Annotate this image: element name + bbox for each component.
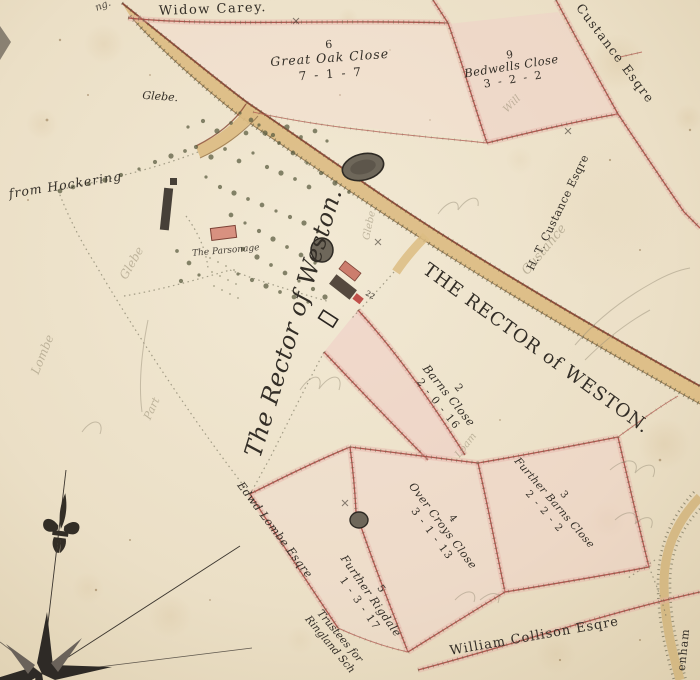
tree-mark xyxy=(229,213,234,218)
tree-mark xyxy=(168,153,173,158)
tree-mark xyxy=(347,190,351,194)
tree-mark xyxy=(250,278,254,282)
tree-mark xyxy=(244,131,249,136)
orchard-dot xyxy=(229,293,231,295)
tree-mark xyxy=(263,283,268,288)
orchard-dot xyxy=(217,261,219,263)
tree-mark xyxy=(251,151,254,154)
map-canvas: Widow Carey. ng. 6 Great Oak Close 7 - 1… xyxy=(0,0,700,680)
tree-mark xyxy=(284,124,289,129)
foxing-speck xyxy=(499,419,501,421)
tree-mark xyxy=(201,119,205,123)
tree-mark xyxy=(293,177,297,181)
foxing-speck xyxy=(95,589,97,591)
tree-mark xyxy=(257,229,261,233)
tree-mark xyxy=(257,123,260,126)
tree-mark xyxy=(262,130,267,135)
orchard-dot xyxy=(221,289,223,291)
building-outbuilding xyxy=(170,178,177,185)
tree-mark xyxy=(229,121,233,125)
orchard-dot xyxy=(237,297,239,299)
tree-mark xyxy=(307,185,312,190)
foxing-speck xyxy=(87,94,89,96)
tree-mark xyxy=(153,160,157,164)
foxing-speck xyxy=(609,159,611,161)
foxing-speck xyxy=(149,74,151,76)
estate-map: Widow Carey. ng. 6 Great Oak Close 7 - 1… xyxy=(0,0,700,680)
tree-mark xyxy=(183,149,187,153)
tree-mark xyxy=(208,154,213,159)
tree-mark xyxy=(270,236,275,241)
tree-mark xyxy=(319,171,323,175)
tree-mark xyxy=(274,209,277,212)
tree-mark xyxy=(313,129,318,134)
tree-mark xyxy=(332,180,337,185)
label-glebe: Glebe. xyxy=(142,89,179,104)
orchard-dot xyxy=(235,283,237,285)
tree-mark xyxy=(243,221,246,224)
tree-mark xyxy=(322,294,327,299)
foxing-speck xyxy=(209,599,211,601)
tree-mark xyxy=(194,145,198,149)
tree-mark xyxy=(197,273,200,276)
tree-mark xyxy=(285,245,289,249)
foxing-speck xyxy=(559,659,561,661)
tree-mark xyxy=(186,125,189,128)
paper-stain xyxy=(520,130,680,290)
tree-mark xyxy=(269,263,273,267)
tree-mark xyxy=(277,141,281,145)
foxing-speck xyxy=(46,119,49,122)
tree-mark xyxy=(301,220,306,225)
tree-mark xyxy=(246,197,250,201)
tree-mark xyxy=(231,190,236,195)
orchard-dot xyxy=(213,285,215,287)
tree-mark xyxy=(299,135,303,139)
foxing-speck xyxy=(59,39,61,41)
tree-mark xyxy=(175,249,179,253)
orchard-dot xyxy=(219,275,221,277)
paper-stain xyxy=(72,572,104,604)
paper-stain xyxy=(286,626,314,654)
paper-stain xyxy=(148,594,192,638)
foxing-speck xyxy=(27,199,29,201)
tree-mark xyxy=(137,167,140,170)
tree-mark xyxy=(238,111,241,114)
tree-mark xyxy=(291,151,296,156)
foxing-speck xyxy=(639,249,641,251)
tree-mark xyxy=(305,161,308,164)
foxing-speck xyxy=(659,459,662,462)
paper-stain xyxy=(26,108,58,140)
tree-mark xyxy=(214,128,219,133)
tree-mark xyxy=(278,290,282,294)
orchard-dot xyxy=(225,265,227,267)
paper-stain xyxy=(84,24,124,64)
tree-mark xyxy=(254,254,259,259)
tree-mark xyxy=(237,159,242,164)
building-parsonage xyxy=(210,225,236,240)
paper-stain xyxy=(506,146,534,174)
tree-mark xyxy=(260,203,265,208)
tree-mark xyxy=(218,185,222,189)
orchard-dot xyxy=(233,269,235,271)
tree-mark xyxy=(187,261,192,266)
tree-mark xyxy=(265,165,269,169)
tree-mark xyxy=(204,175,207,178)
tree-mark xyxy=(249,118,254,123)
tree-mark xyxy=(179,279,183,283)
orchard-dot xyxy=(227,279,229,281)
pond-south xyxy=(350,512,368,528)
orchard-dot xyxy=(211,271,213,273)
foxing-speck xyxy=(689,129,691,131)
tree-mark xyxy=(278,170,283,175)
foxing-speck xyxy=(639,639,641,641)
tree-mark xyxy=(223,147,227,151)
tree-mark xyxy=(236,272,239,275)
tree-mark xyxy=(288,215,292,219)
tree-mark xyxy=(283,271,288,276)
tree-mark xyxy=(271,133,275,137)
foxing-speck xyxy=(129,539,131,541)
tree-mark xyxy=(325,139,328,142)
